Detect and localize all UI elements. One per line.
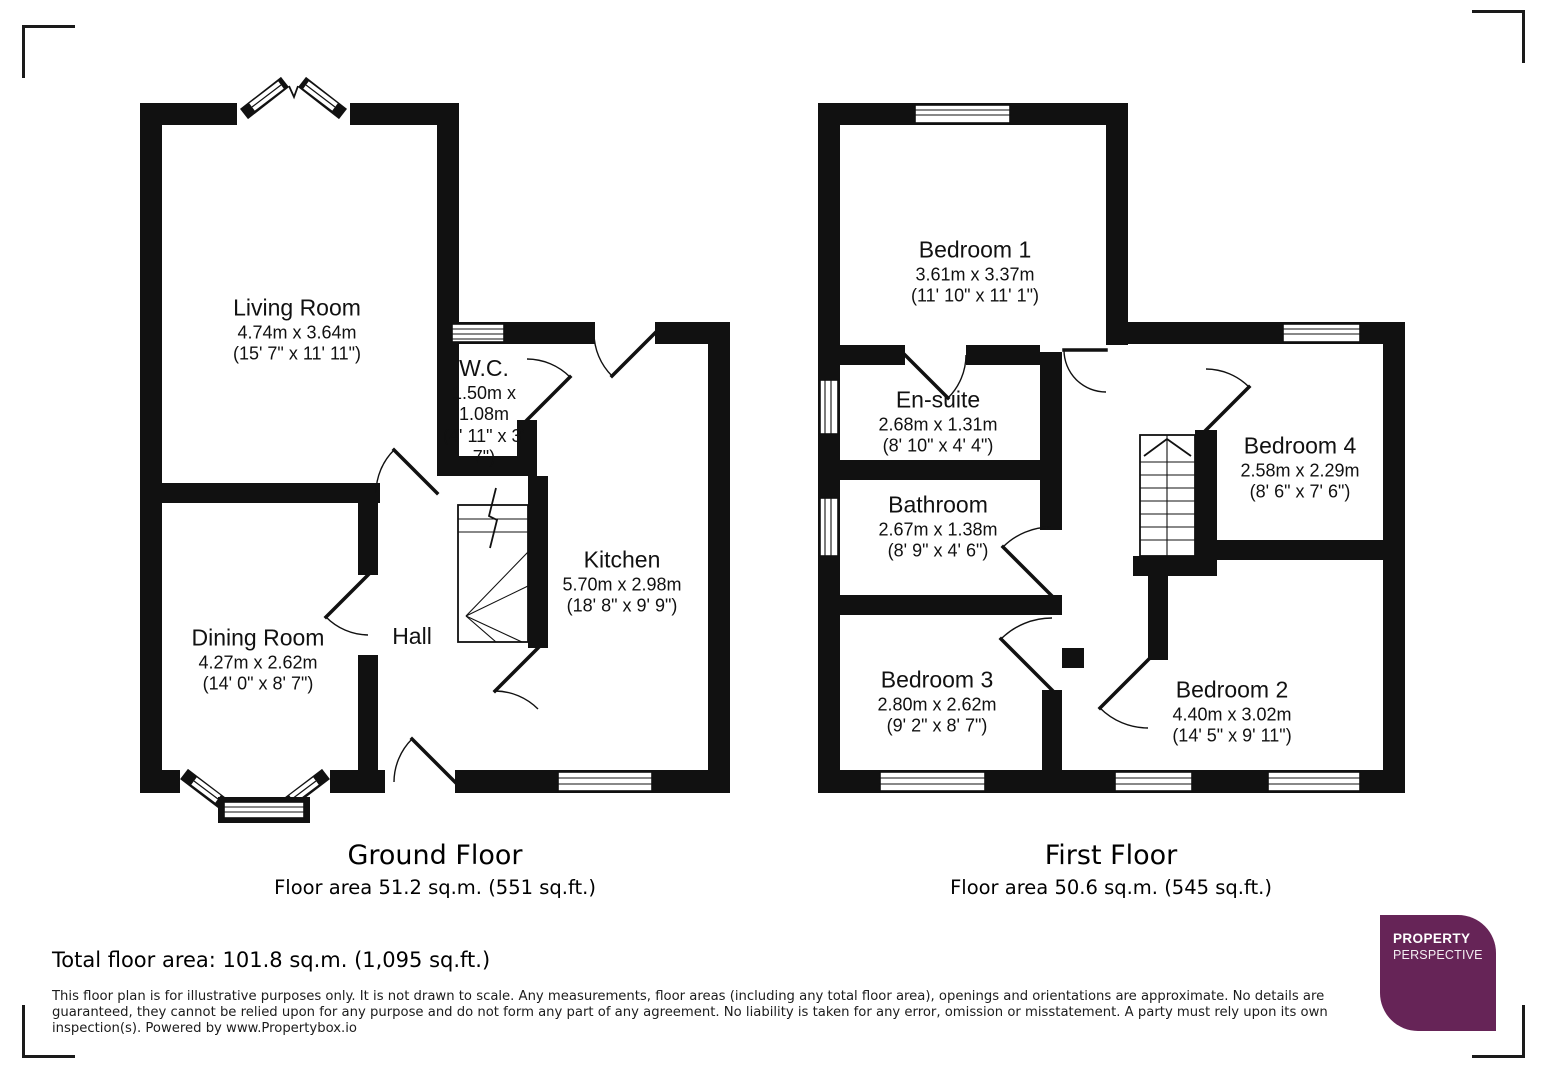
room-label-bathroom: Bathroom 2.67m x 1.38m (8' 9" x 4' 6")	[878, 492, 997, 563]
floorplan-page: Living Room 4.74m x 3.64m (15' 7" x 11' …	[0, 0, 1544, 1080]
room-name: Bedroom 2	[1172, 677, 1291, 705]
room-dimensions-imperial: (11' 10" x 11' 1")	[911, 286, 1039, 308]
room-dimensions-metric: 4.74m x 3.64m	[233, 322, 361, 344]
room-label-hall: Hall	[392, 623, 432, 651]
room-name: Bedroom 1	[911, 237, 1039, 265]
room-dimensions-imperial: (14' 0" x 8' 7")	[192, 674, 325, 696]
room-dimensions-metric: 4.40m x 3.02m	[1172, 704, 1291, 726]
room-dimensions-metric: 2.58m x 2.29m	[1240, 460, 1359, 482]
room-label-kitchen: Kitchen 5.70m x 2.98m (18' 8" x 9' 9")	[562, 547, 681, 618]
room-name: En-suite	[878, 387, 997, 415]
room-dimensions-metric: 2.67m x 1.38m	[878, 519, 997, 541]
room-dimensions-metric: 3.61m x 3.37m	[911, 264, 1039, 286]
room-name: Bedroom 3	[877, 667, 996, 695]
first-floor-stairs	[1140, 435, 1195, 556]
room-label-bedroom-4: Bedroom 4 2.58m x 2.29m (8' 6" x 7' 6")	[1240, 433, 1359, 504]
logo-line-2: PERSPECTIVE	[1393, 948, 1496, 964]
room-dimensions-metric: 2.68m x 1.31m	[878, 414, 997, 436]
room-label-living-room: Living Room 4.74m x 3.64m (15' 7" x 11' …	[233, 295, 361, 366]
room-dimensions-imperial: (9' 2" x 8' 7")	[877, 716, 996, 738]
room-name: Dining Room	[192, 625, 325, 653]
room-dimensions-metric: 2.80m x 2.62m	[877, 694, 996, 716]
room-label-bedroom-1: Bedroom 1 3.61m x 3.37m (11' 10" x 11' 1…	[911, 237, 1039, 308]
room-name: Living Room	[233, 295, 361, 323]
room-dimensions-imperial: (4' 11" x 3' 7")	[435, 426, 533, 469]
ground-floor-area: Floor area 51.2 sq.m. (551 sq.ft.)	[274, 876, 596, 899]
room-label-bedroom-3: Bedroom 3 2.80m x 2.62m (9' 2" x 8' 7")	[877, 667, 996, 738]
floorplan-drawing	[0, 0, 1544, 1080]
room-dimensions-metric: 5.70m x 2.98m	[562, 574, 681, 596]
ground-floor-caption: Ground Floor Floor area 51.2 sq.m. (551 …	[274, 840, 596, 899]
disclaimer-text: This floor plan is for illustrative purp…	[52, 989, 1342, 1037]
ground-floor-title: Ground Floor	[274, 840, 596, 871]
first-floor-caption: First Floor Floor area 50.6 sq.m. (545 s…	[950, 840, 1272, 899]
room-dimensions-metric: 1.50m x 1.08m	[435, 383, 533, 426]
room-dimensions-imperial: (8' 6" x 7' 6")	[1240, 482, 1359, 504]
room-label-wc: W.C. 1.50m x 1.08m (4' 11" x 3' 7")	[435, 355, 533, 469]
ground-floor-stairs	[458, 488, 528, 642]
first-floor-title: First Floor	[950, 840, 1272, 871]
room-name: W.C.	[435, 355, 533, 383]
room-name: Hall	[392, 623, 432, 651]
total-floor-area: Total floor area: 101.8 sq.m. (1,095 sq.…	[52, 948, 490, 972]
property-perspective-logo: PROPERTY PERSPECTIVE	[1380, 915, 1496, 1031]
room-label-en-suite: En-suite 2.68m x 1.31m (8' 10" x 4' 4")	[878, 387, 997, 458]
room-label-dining-room: Dining Room 4.27m x 2.62m (14' 0" x 8' 7…	[192, 625, 325, 696]
dining-room-bay-window	[184, 774, 326, 823]
room-dimensions-imperial: (8' 10" x 4' 4")	[878, 436, 997, 458]
room-dimensions-imperial: (18' 8" x 9' 9")	[562, 596, 681, 618]
room-name: Kitchen	[562, 547, 681, 575]
room-name: Bedroom 4	[1240, 433, 1359, 461]
room-name: Bathroom	[878, 492, 997, 520]
first-floor-area: Floor area 50.6 sq.m. (545 sq.ft.)	[950, 876, 1272, 899]
room-dimensions-imperial: (14' 5" x 9' 11")	[1172, 726, 1291, 748]
living-room-bay-window	[244, 82, 343, 114]
room-dimensions-metric: 4.27m x 2.62m	[192, 652, 325, 674]
room-label-bedroom-2: Bedroom 2 4.40m x 3.02m (14' 5" x 9' 11"…	[1172, 677, 1291, 748]
logo-line-1: PROPERTY	[1393, 931, 1496, 948]
room-dimensions-imperial: (15' 7" x 11' 11")	[233, 344, 361, 366]
room-dimensions-imperial: (8' 9" x 4' 6")	[878, 541, 997, 563]
